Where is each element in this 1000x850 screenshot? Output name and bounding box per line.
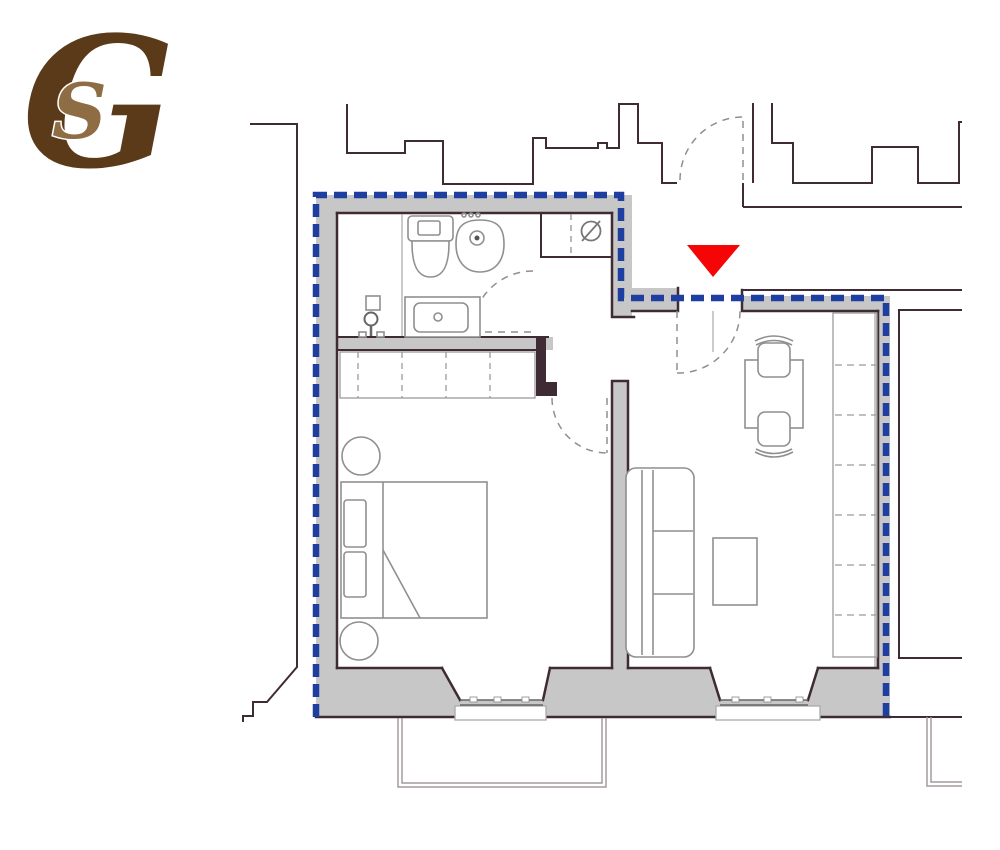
- bedroom-door-swing: [552, 398, 607, 453]
- washbasin-icon: [405, 297, 480, 337]
- door-swings: [472, 117, 743, 453]
- stairwell-door-swing: [680, 117, 743, 180]
- bedroom: [340, 352, 535, 660]
- pillow-icon: [344, 500, 366, 547]
- boiler-icon: [582, 221, 601, 241]
- entry-door-swing: [677, 311, 740, 373]
- shower-closet: [571, 214, 601, 256]
- balcony-right: [927, 717, 962, 786]
- chair-icon: [755, 412, 793, 457]
- neighbor-topright-outline: [753, 103, 962, 183]
- pillow-icon: [344, 552, 366, 597]
- balcony-left: [398, 718, 606, 787]
- floor-plan-page: G S: [0, 0, 1000, 850]
- chair-icon: [755, 336, 793, 377]
- bedroom-window-sill: [455, 706, 546, 720]
- logo-monogram: G S: [22, 0, 176, 209]
- bedside-table-icon: [342, 437, 380, 475]
- floor-plan: G S: [0, 0, 1000, 850]
- toilet-icon: [408, 216, 453, 277]
- living-window-reveal: [710, 668, 818, 700]
- neighbor-top-outline: [347, 104, 677, 184]
- neighbor-left-outline: [243, 124, 297, 722]
- living-room: [626, 311, 877, 657]
- entrance-marker-icon: [687, 245, 740, 277]
- bathroom-door-swing: [472, 271, 533, 332]
- coffee-table-icon: [713, 538, 757, 605]
- bidet-icon: [456, 213, 504, 272]
- living-wardrobe-icon: [833, 313, 877, 657]
- bed-icon: [341, 482, 487, 618]
- balconies: [398, 717, 962, 787]
- closet-walls: [541, 213, 612, 257]
- wall-partition-bath-bedroom: [337, 337, 553, 350]
- living-window-sill: [716, 706, 820, 720]
- bedside-table-icon: [340, 622, 378, 660]
- logo-inner-letter: S: [52, 67, 107, 156]
- faucet-icon: [359, 296, 384, 337]
- neighbor-right-room: [899, 310, 962, 658]
- bathroom: [359, 213, 601, 337]
- bedroom-wardrobe-icon: [340, 352, 535, 398]
- sofa-icon: [626, 468, 694, 657]
